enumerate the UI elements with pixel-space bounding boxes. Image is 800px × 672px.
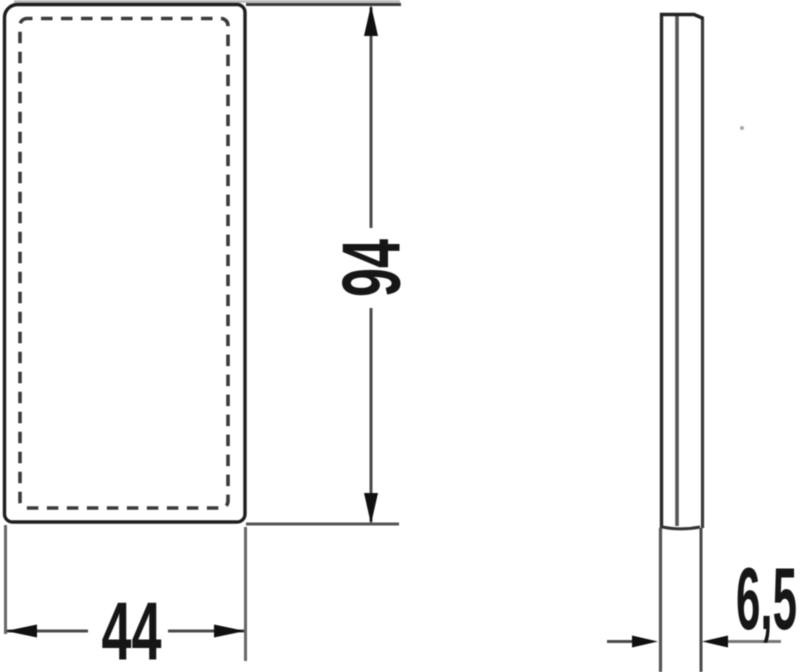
svg-text:44: 44	[102, 585, 162, 672]
svg-text:94: 94	[325, 239, 418, 297]
svg-text:6,5: 6,5	[736, 549, 797, 648]
